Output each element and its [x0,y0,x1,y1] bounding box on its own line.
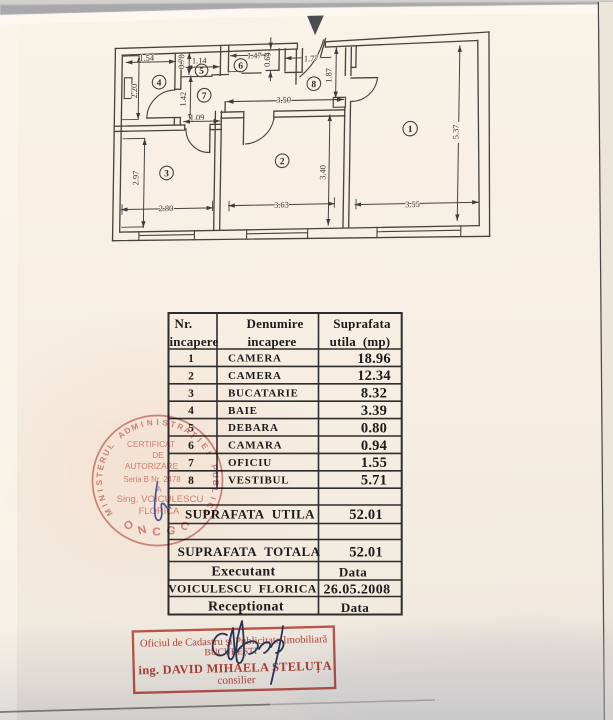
svg-text:S: S [95,479,104,485]
svg-text:6: 6 [188,440,194,452]
svg-text:7: 7 [188,457,194,469]
svg-text:0.64: 0.64 [263,51,272,67]
svg-text:DE: DE [152,450,164,460]
svg-text:incapere: incapere [170,334,219,349]
svg-text:3: 3 [188,388,194,400]
svg-text:52.01: 52.01 [349,507,383,523]
svg-text:8.32: 8.32 [361,386,387,402]
svg-text:3.55: 3.55 [405,200,420,209]
svg-text:Sing. VOICULESCU: Sing. VOICULESCU [117,494,204,505]
svg-text:1.54: 1.54 [139,54,155,63]
svg-text:DEBARA: DEBARA [228,422,279,434]
svg-text:4: 4 [157,78,162,88]
svg-text:6: 6 [238,62,243,72]
svg-text:BAIE: BAIE [228,405,258,417]
svg-text:3.63: 3.63 [274,200,289,209]
svg-text:Suprafata: Suprafata [333,316,391,331]
svg-text:BUCATARIE: BUCATARIE [228,387,299,399]
svg-text:18.96: 18.96 [357,351,391,367]
svg-text:2: 2 [280,157,285,167]
svg-text:0.70: 0.70 [177,54,186,69]
svg-text:52.01: 52.01 [349,545,383,561]
svg-text:AUTORIZARE: AUTORIZARE [125,461,179,471]
svg-text:FLORICA: FLORICA [139,505,180,516]
svg-text:4: 4 [188,405,194,417]
svg-text:0.94: 0.94 [361,438,387,454]
svg-text:1: 1 [188,353,194,365]
svg-text:2.80: 2.80 [159,204,174,213]
svg-text:3.40: 3.40 [318,165,327,180]
svg-text:8: 8 [188,475,194,487]
svg-text:U: U [211,472,221,479]
svg-text:5.37: 5.37 [451,124,460,139]
svg-text:0.80: 0.80 [361,420,387,436]
svg-text:VESTIBUL: VESTIBUL [228,474,289,486]
svg-text:1: 1 [408,125,413,135]
svg-text:Executant: Executant [211,565,275,580]
svg-text:utila (mp): utila (mp) [330,334,391,349]
svg-text:VOICULESCU FLORICA: VOICULESCU FLORICA [168,582,317,596]
svg-text:Receptionat: Receptionat [208,600,284,615]
svg-text:3.50: 3.50 [276,95,291,104]
svg-text:7: 7 [202,92,207,102]
svg-text:B: B [211,480,220,486]
svg-text:3.39: 3.39 [361,403,387,419]
svg-text:2.97: 2.97 [131,171,140,186]
svg-text:C: C [152,526,161,538]
svg-text:incapere: incapere [247,334,296,349]
svg-text:2.20: 2.20 [130,84,139,99]
svg-text:Seria B Nr. 2478: Seria B Nr. 2478 [123,475,180,484]
svg-text:1.55: 1.55 [361,455,387,471]
svg-text:1.09: 1.09 [190,113,205,122]
svg-text:1.42: 1.42 [179,92,188,107]
svg-text:SUPRAFATA TOTALA: SUPRAFATA TOTALA [178,544,321,559]
svg-text:8: 8 [311,80,316,90]
svg-text:CERTIFICAT: CERTIFICAT [127,439,175,449]
svg-text:1.87: 1.87 [324,68,333,83]
svg-text:Nr.: Nr. [175,316,193,331]
svg-text:12.34: 12.34 [357,368,391,384]
svg-text:1.47: 1.47 [247,51,262,60]
svg-text:T: T [95,472,104,478]
svg-text:Data: Data [339,565,367,580]
svg-text:26.05.2008: 26.05.2008 [324,583,391,598]
svg-text:Denumire: Denumire [247,316,304,331]
svg-text:OFICIU: OFICIU [228,457,272,469]
svg-text:5.71: 5.71 [361,473,387,489]
svg-text:3: 3 [164,169,169,179]
svg-text:1.77: 1.77 [304,54,319,63]
svg-text:Data: Data [341,600,369,615]
svg-text:CAMARA: CAMARA [228,440,282,452]
svg-text:5: 5 [199,67,204,77]
svg-text:CAMERA: CAMERA [228,353,282,365]
svg-text:CAMERA: CAMERA [228,370,282,382]
svg-text:2: 2 [188,370,194,382]
svg-text:I: I [156,418,158,427]
svg-text:consilier: consilier [217,674,255,687]
